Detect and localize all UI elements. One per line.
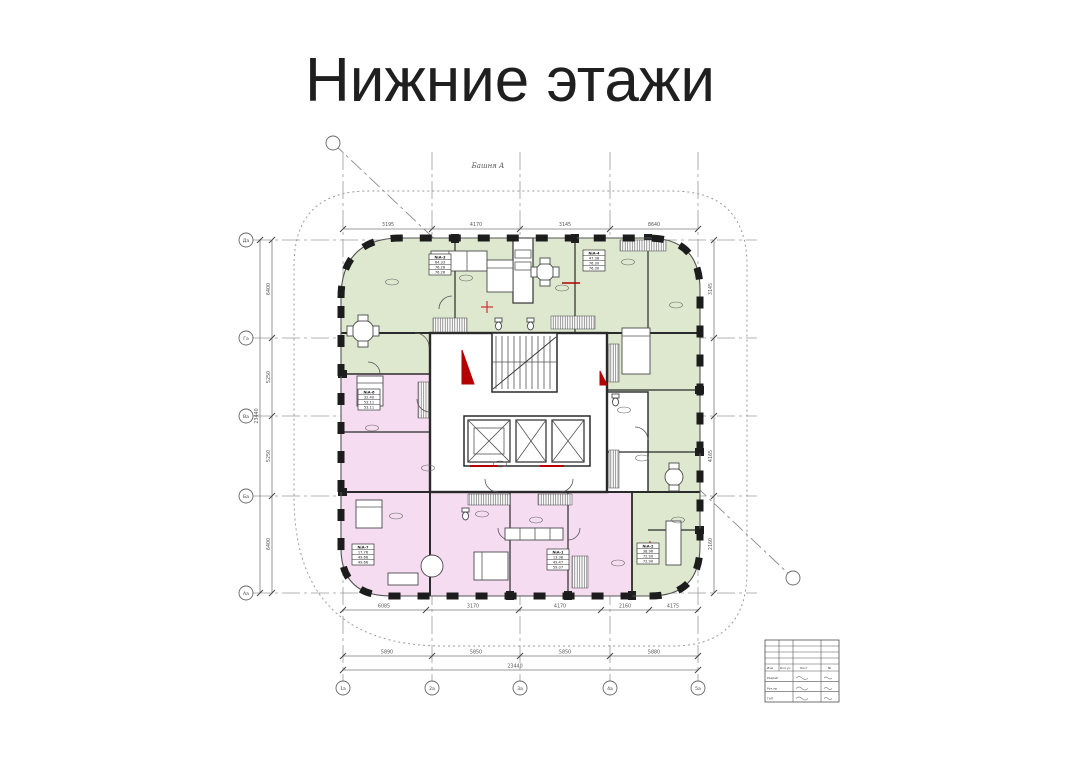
apartment-stamp: №А-6 32.40 53.11 53.11 [358, 389, 380, 410]
floor-plan-drawing: Башня А [0, 0, 1072, 768]
dim-label: 2160 [708, 538, 714, 550]
apartment-number: №А-7 [357, 545, 369, 549]
apartment-area: 76.26 [435, 266, 446, 270]
dim-label: 5880 [648, 650, 660, 656]
dining-table [421, 555, 443, 577]
apartment-area: 76.30 [589, 267, 600, 271]
apartment-stamp: №А-1 13.38 49.47 59.07 [547, 549, 569, 570]
elevators [464, 416, 590, 466]
core [430, 333, 607, 492]
bed [622, 328, 650, 374]
bed [474, 552, 508, 580]
toilet [462, 508, 469, 520]
apartment-stamp: №А-7 17.76 49.66 49.66 [352, 544, 374, 565]
apartment-area: 32.40 [364, 396, 375, 400]
section-mark-circle [786, 571, 800, 585]
apartment-area: 72.90 [643, 560, 654, 564]
dim-label: 2160 [619, 604, 631, 610]
apartment-area: 53.11 [364, 401, 374, 405]
dim-label: 5890 [381, 650, 393, 656]
grid-col-label: 1а [340, 686, 346, 692]
title-block-header-cell: Лист [800, 666, 808, 670]
apartment-stamp: №А-4 47.38 76.30 76.30 [583, 250, 605, 271]
dim-label: 6085 [378, 604, 390, 610]
dim-label: 5250 [266, 371, 272, 383]
apartment-number: №А-4 [588, 251, 600, 255]
apartment-area: 72.90 [643, 555, 654, 559]
dim-label: 5850 [559, 650, 571, 656]
apartment-area: 38.96 [643, 550, 654, 554]
section-mark-circle [326, 136, 340, 150]
grid-row-label: Ва [243, 414, 249, 420]
apartment-area: 53.11 [364, 406, 374, 410]
grid-row-label: Да [243, 238, 250, 244]
dim-label: 6400 [266, 283, 272, 295]
apartment-area: 76.30 [589, 262, 600, 266]
building: №А-3 64.33 76.26 76.26 №А-4 47.38 76.30 … [338, 234, 704, 600]
wardrobe [505, 528, 563, 540]
apartment-number: №А-2 [642, 544, 654, 548]
dim-label: 4165 [708, 450, 714, 462]
apartment-area: 59.07 [553, 566, 563, 570]
dim-label: 4175 [667, 604, 679, 610]
stair [492, 333, 557, 392]
grid-row-label: Га [243, 336, 249, 342]
grid-col-label: 4а [607, 686, 613, 692]
apartment-number: №А-3 [434, 255, 446, 259]
apartment-number: №А-1 [552, 550, 564, 554]
dim-label: 4170 [470, 222, 482, 228]
sofa [388, 573, 418, 585]
apartment-area: 13.38 [553, 556, 564, 560]
apartment-area: 47.38 [589, 257, 600, 261]
title-block-header-cell: Изм [767, 666, 773, 670]
dim-label: 6400 [266, 538, 272, 550]
apartment-area: 49.66 [358, 556, 369, 560]
service-shaft [513, 238, 533, 303]
dim-label: 5250 [266, 450, 272, 462]
tower-label: Башня А [471, 162, 505, 170]
title-block: Изм Кол.уч Лист № Разраб Рук.пр ГАП [765, 640, 839, 702]
apartment-area: 49.66 [358, 561, 369, 565]
apartment-number: №А-6 [363, 390, 375, 394]
apartment-area: 49.47 [553, 561, 563, 565]
bed [356, 500, 382, 528]
sofa [666, 521, 681, 565]
dim-label: 3145 [559, 222, 571, 228]
toilet [612, 394, 619, 406]
dim-label: 23440 [254, 408, 260, 423]
slide: { "page": { "title": "Нижние этажи" }, "… [0, 0, 1072, 768]
title-block-row-label: ГАП [767, 697, 773, 701]
title-block-row-label: Разраб [767, 676, 778, 680]
toilet [527, 318, 534, 330]
title-block-header-cell: Кол.уч [780, 666, 791, 670]
title-block-header-cell: № [828, 666, 831, 670]
apartment-area: 64.33 [435, 261, 445, 265]
grid-col-label: 2а [429, 686, 435, 692]
dim-label: 3170 [467, 604, 479, 610]
apartment-stamp: №А-2 38.96 72.90 72.90 [637, 543, 659, 564]
dim-label: 3145 [708, 283, 714, 295]
dim-label: 4170 [554, 604, 566, 610]
apartment-area: 76.26 [435, 271, 446, 275]
apartment-stamp: №А-3 64.33 76.26 76.26 [429, 254, 451, 275]
toilet [495, 318, 502, 330]
bed [487, 260, 513, 292]
grid-row-label: Аа [243, 591, 249, 597]
apartment-area: 17.76 [358, 551, 369, 555]
dim-label: 8640 [648, 222, 660, 228]
dim-label: 5850 [470, 650, 482, 656]
title-block-row-label: Рук.пр [767, 686, 777, 690]
dim-label: 23440 [507, 664, 522, 670]
grid-row-label: Ба [243, 494, 249, 500]
grid-col-label: 3а [517, 686, 523, 692]
grid-col-label: 5а [695, 686, 701, 692]
dim-label: 3195 [382, 222, 394, 228]
